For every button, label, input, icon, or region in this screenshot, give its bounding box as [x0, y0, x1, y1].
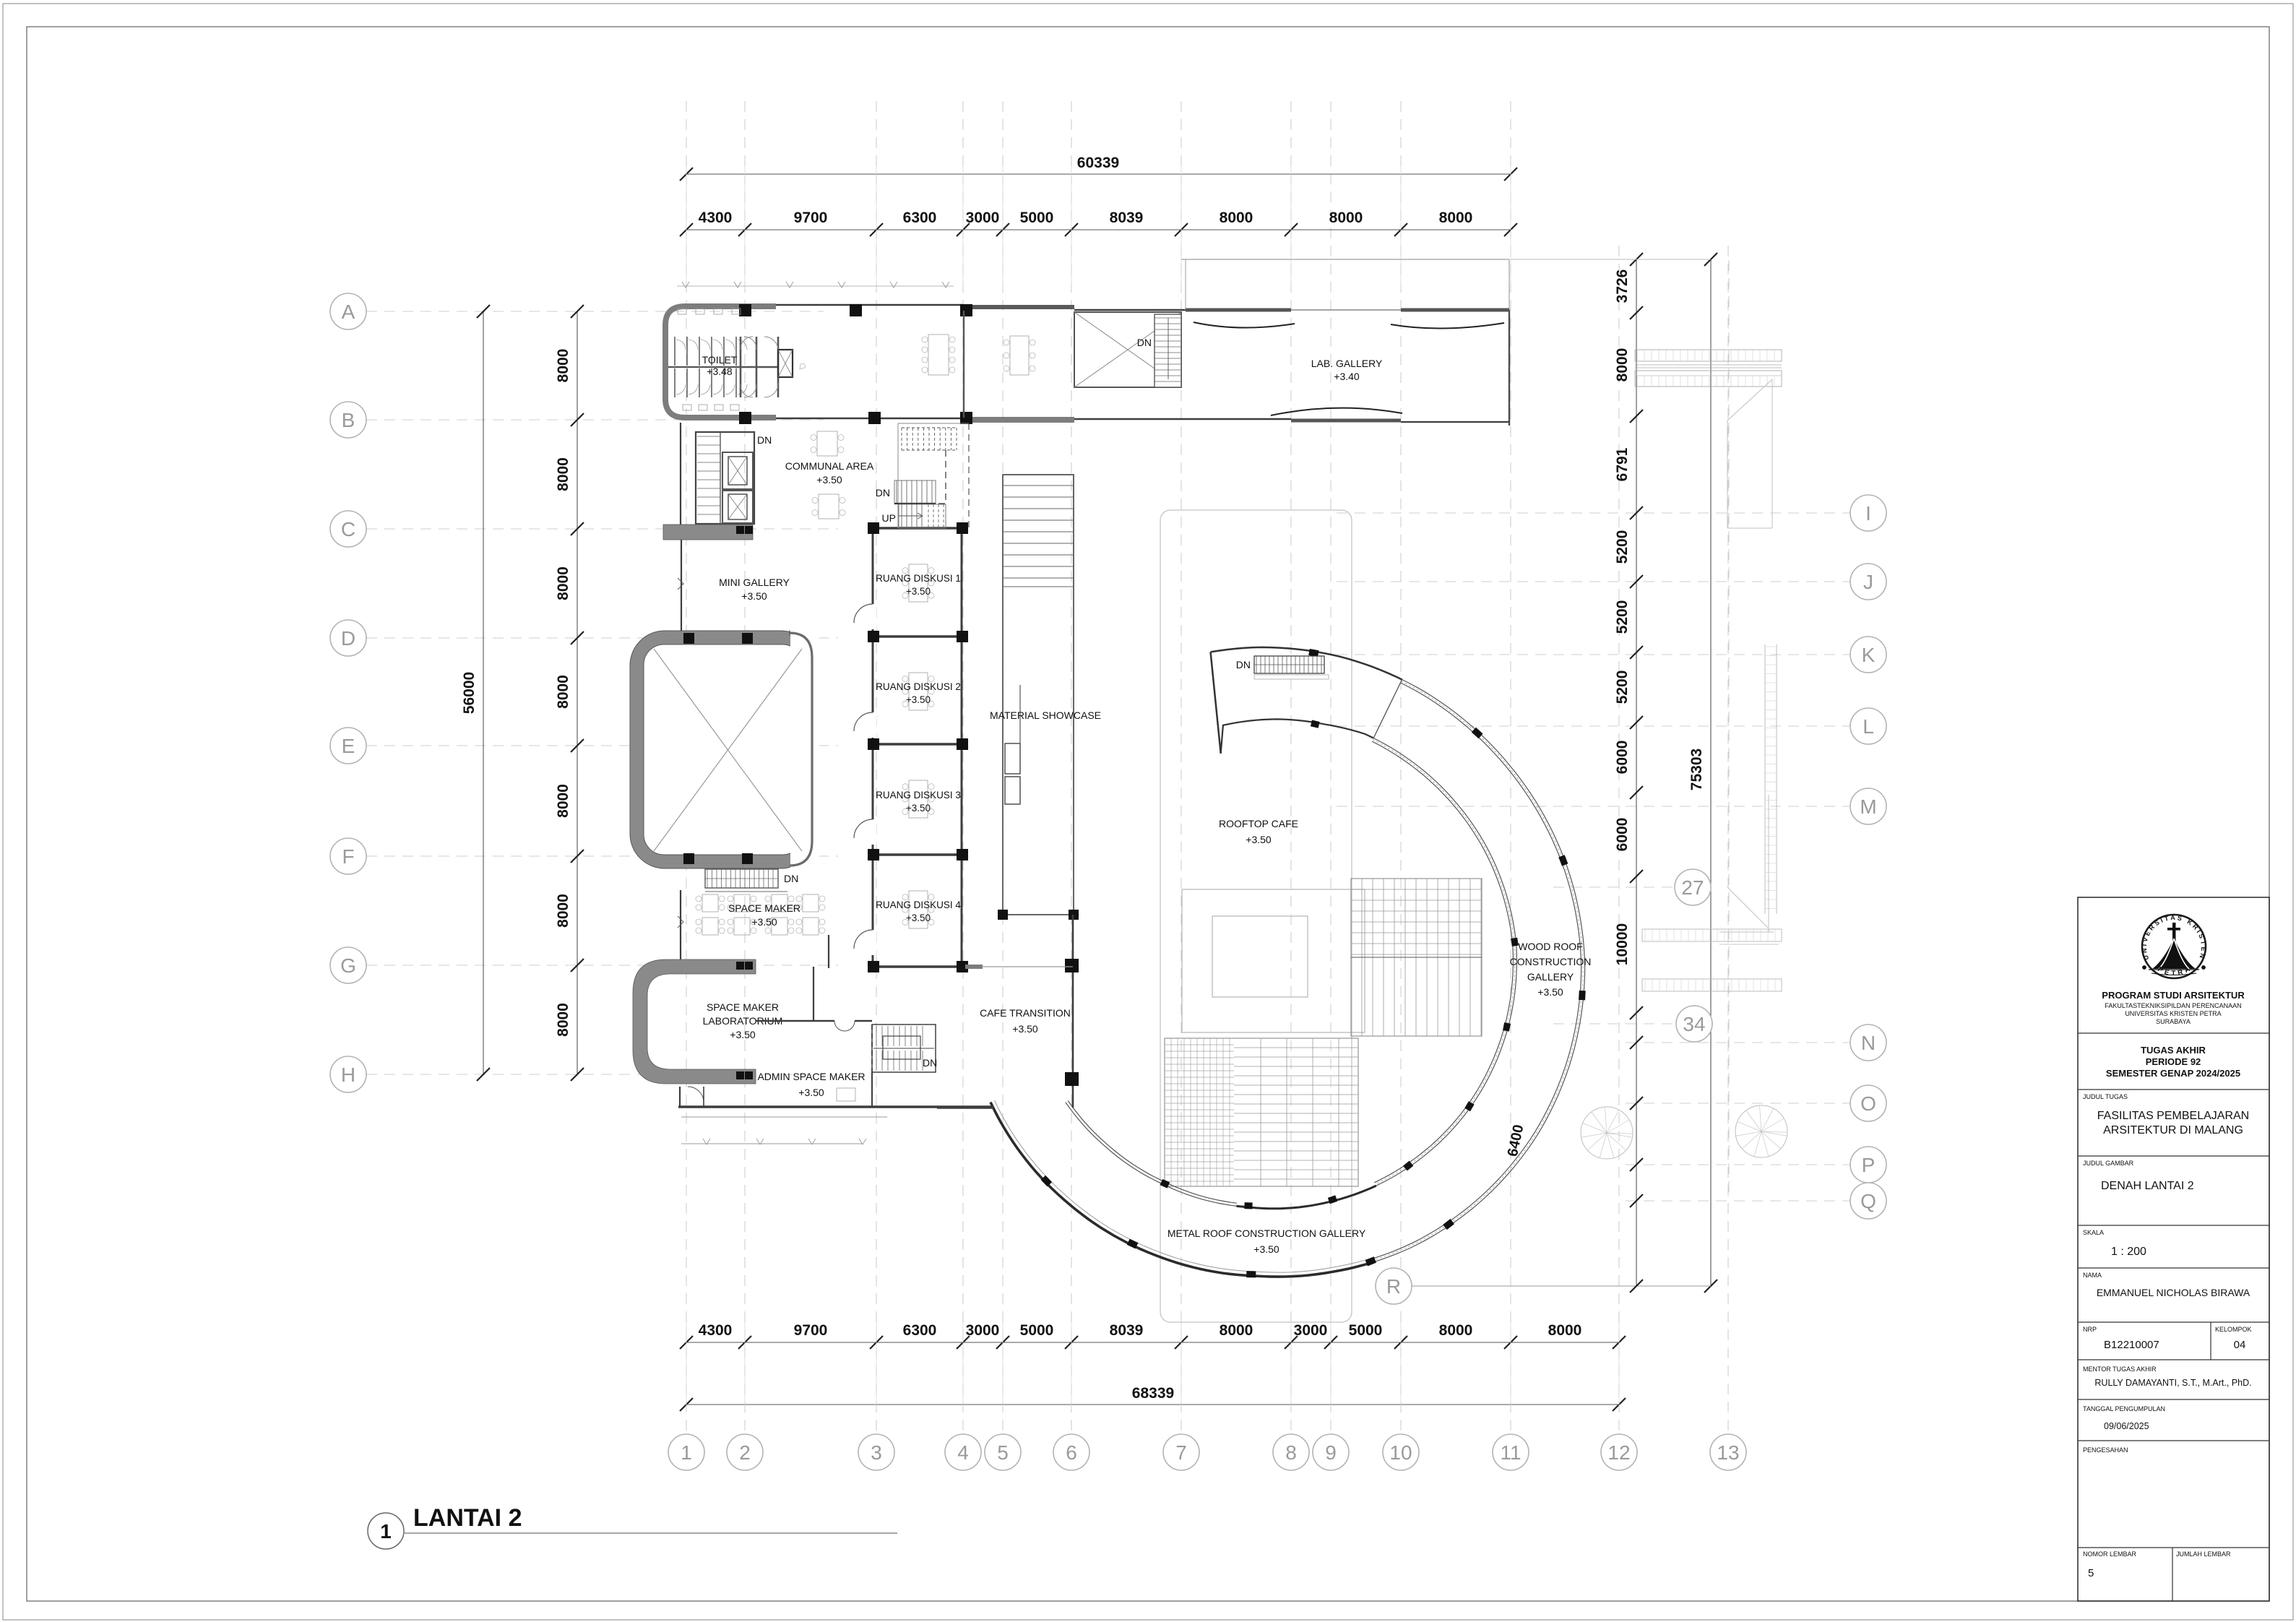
svg-text:G: G — [340, 954, 356, 977]
svg-text:DN: DN — [1137, 337, 1152, 348]
svg-text:11: 11 — [1500, 1441, 1521, 1464]
svg-text:09/06/2025: 09/06/2025 — [2104, 1421, 2149, 1431]
svg-text:4300: 4300 — [699, 1322, 733, 1339]
svg-text:+3.50: +3.50 — [730, 1029, 756, 1040]
svg-text:5000: 5000 — [1349, 1322, 1383, 1339]
svg-text:5000: 5000 — [1020, 210, 1054, 226]
svg-text:3000: 3000 — [966, 210, 1000, 226]
svg-text:04: 04 — [2234, 1339, 2246, 1351]
svg-text:13: 13 — [1717, 1441, 1739, 1464]
svg-text:6300: 6300 — [903, 210, 937, 226]
svg-text:EMMANUEL NICHOLAS BIRAWA: EMMANUEL NICHOLAS BIRAWA — [2097, 1287, 2250, 1298]
svg-text:8000: 8000 — [1439, 210, 1473, 226]
svg-text:RUANG DISKUSI 3: RUANG DISKUSI 3 — [876, 790, 961, 801]
svg-text:9700: 9700 — [794, 1322, 828, 1339]
svg-text:B: B — [342, 409, 355, 431]
svg-text:RUANG DISKUSI 4: RUANG DISKUSI 4 — [876, 900, 961, 910]
svg-text:9700: 9700 — [794, 210, 828, 226]
svg-text:8000: 8000 — [555, 784, 571, 818]
svg-text:7: 7 — [1175, 1441, 1187, 1464]
svg-text:3000: 3000 — [966, 1322, 1000, 1339]
svg-text:LANTAI 2: LANTAI 2 — [413, 1504, 522, 1532]
svg-text:JUDUL TUGAS: JUDUL TUGAS — [2083, 1093, 2128, 1100]
svg-text:ROOFTOP CAFE: ROOFTOP CAFE — [1219, 818, 1298, 829]
svg-text:5000: 5000 — [1020, 1322, 1054, 1339]
svg-text:5200: 5200 — [1614, 670, 1631, 704]
svg-text:8000: 8000 — [1220, 1322, 1253, 1339]
svg-text:60339: 60339 — [1077, 155, 1119, 171]
svg-text:4300: 4300 — [699, 210, 733, 226]
svg-text:6000: 6000 — [1614, 741, 1631, 775]
svg-text:B12210007: B12210007 — [2104, 1339, 2159, 1351]
svg-text:N: N — [1861, 1032, 1876, 1054]
svg-text:+3.40: +3.40 — [1334, 371, 1360, 382]
svg-text:CAFE TRANSITION: CAFE TRANSITION — [980, 1007, 1071, 1019]
svg-text:8000: 8000 — [1329, 210, 1363, 226]
svg-text:J: J — [1863, 571, 1873, 593]
svg-text:DN: DN — [1236, 659, 1251, 670]
svg-text:TOILET: TOILET — [702, 354, 738, 366]
svg-text:MATERIAL SHOWCASE: MATERIAL SHOWCASE — [990, 709, 1101, 721]
svg-text:+3.50: +3.50 — [1537, 986, 1563, 998]
svg-text:P: P — [1862, 1154, 1876, 1176]
svg-text:H: H — [341, 1064, 355, 1086]
svg-text:K: K — [1862, 644, 1876, 666]
svg-text:27: 27 — [1681, 876, 1704, 899]
svg-text:8: 8 — [1285, 1441, 1297, 1464]
svg-text:8000: 8000 — [555, 566, 571, 600]
svg-text:+3.50: +3.50 — [906, 803, 931, 814]
svg-text:M: M — [1860, 795, 1876, 818]
svg-text:COMMUNAL AREA: COMMUNAL AREA — [785, 460, 874, 472]
svg-text:6: 6 — [1066, 1441, 1077, 1464]
svg-text:FASILITAS PEMBELAJARAN: FASILITAS PEMBELAJARAN — [2097, 1110, 2249, 1122]
svg-text:NAMA: NAMA — [2083, 1272, 2102, 1279]
svg-text:SPACE MAKER: SPACE MAKER — [728, 902, 800, 914]
svg-text:68339: 68339 — [1132, 1385, 1174, 1402]
svg-text:+3.50: +3.50 — [798, 1087, 824, 1098]
svg-text:4: 4 — [957, 1441, 969, 1464]
svg-text:10000: 10000 — [1614, 923, 1631, 965]
svg-text:+3.50: +3.50 — [906, 913, 931, 923]
svg-text:I: I — [1865, 502, 1871, 525]
svg-text:8000: 8000 — [555, 1003, 571, 1037]
svg-text:PENGESAHAN: PENGESAHAN — [2083, 1446, 2128, 1454]
svg-text:3726: 3726 — [1614, 269, 1631, 303]
svg-text:KELOMPOK: KELOMPOK — [2215, 1326, 2252, 1333]
svg-text:DN: DN — [757, 434, 772, 446]
svg-text:DN: DN — [923, 1057, 937, 1069]
svg-text:ADMIN SPACE MAKER: ADMIN SPACE MAKER — [757, 1071, 865, 1082]
svg-text:+3.50: +3.50 — [906, 586, 931, 597]
svg-text:10: 10 — [1389, 1441, 1412, 1464]
svg-text:Q: Q — [1860, 1190, 1876, 1212]
svg-text:F: F — [342, 845, 354, 868]
svg-text:+3.50: +3.50 — [1246, 834, 1272, 845]
svg-text:NRP: NRP — [2083, 1326, 2097, 1333]
svg-text:1 : 200: 1 : 200 — [2111, 1246, 2146, 1258]
svg-text:+3.50: +3.50 — [751, 916, 777, 928]
svg-text:D: D — [341, 627, 355, 650]
svg-text:+3.48: +3.48 — [707, 366, 733, 377]
svg-text:8000: 8000 — [1439, 1322, 1473, 1339]
svg-text:MINI GALLERY: MINI GALLERY — [719, 577, 790, 588]
svg-text:5200: 5200 — [1614, 600, 1631, 634]
svg-text:SPACE MAKER: SPACE MAKER — [707, 1001, 779, 1013]
svg-text:TUGAS AKHIR: TUGAS AKHIR — [2141, 1045, 2206, 1056]
svg-text:JUMLAH LEMBAR: JUMLAH LEMBAR — [2176, 1550, 2231, 1558]
svg-text:8000: 8000 — [555, 457, 571, 491]
svg-text:DN: DN — [876, 487, 890, 499]
svg-text:TANGGAL PENGUMPULAN: TANGGAL PENGUMPULAN — [2083, 1405, 2165, 1412]
svg-text:12: 12 — [1607, 1441, 1630, 1464]
svg-text:34: 34 — [1683, 1013, 1705, 1035]
svg-text:RUANG DISKUSI 1: RUANG DISKUSI 1 — [876, 573, 961, 584]
svg-text:R: R — [1386, 1275, 1401, 1298]
svg-text:1: 1 — [380, 1520, 392, 1543]
svg-text:FAKULTASTEKNIKSIPILDAN PERENCA: FAKULTASTEKNIKSIPILDAN PERENCANAAN — [2105, 1002, 2241, 1009]
svg-text:JUDUL GAMBAR: JUDUL GAMBAR — [2083, 1160, 2134, 1167]
svg-text:9: 9 — [1325, 1441, 1337, 1464]
svg-text:56000: 56000 — [461, 672, 478, 714]
svg-text:8000: 8000 — [555, 675, 571, 709]
svg-text:5: 5 — [997, 1441, 1009, 1464]
svg-text:METAL ROOF CONSTRUCTION GALLER: METAL ROOF CONSTRUCTION GALLERY — [1168, 1228, 1366, 1239]
svg-text:3000: 3000 — [1294, 1322, 1328, 1339]
svg-text:6300: 6300 — [903, 1322, 937, 1339]
svg-text:5: 5 — [2088, 1567, 2094, 1579]
svg-text:+3.50: +3.50 — [1253, 1243, 1279, 1255]
svg-text:+3.50: +3.50 — [741, 590, 767, 602]
svg-text:75303: 75303 — [1688, 749, 1705, 790]
svg-text:ARSITEKTUR DI MALANG: ARSITEKTUR DI MALANG — [2103, 1124, 2243, 1136]
svg-text:O: O — [1860, 1092, 1876, 1115]
svg-text:NOMOR LEMBAR: NOMOR LEMBAR — [2083, 1550, 2137, 1558]
svg-text:+3.50: +3.50 — [816, 474, 842, 486]
svg-text:6000: 6000 — [1614, 818, 1631, 852]
svg-text:+3.50: +3.50 — [1012, 1023, 1038, 1035]
svg-text:6791: 6791 — [1614, 447, 1631, 481]
svg-text:SEMESTER GENAP 2024/2025: SEMESTER GENAP 2024/2025 — [2106, 1068, 2240, 1079]
svg-text:L: L — [1863, 715, 1874, 738]
svg-text:SKALA: SKALA — [2083, 1229, 2104, 1236]
svg-text:RUANG DISKUSI 2: RUANG DISKUSI 2 — [876, 681, 961, 692]
svg-text:LAB. GALLERY: LAB. GALLERY — [1311, 358, 1383, 369]
svg-text:WOOD ROOF: WOOD ROOF — [1518, 941, 1582, 952]
svg-text:PERIODE 92: PERIODE 92 — [2146, 1056, 2201, 1067]
svg-text:CONSTRUCTION: CONSTRUCTION — [1510, 956, 1592, 967]
svg-text:RULLY DAMAYANTI, S.T., M.Art.,: RULLY DAMAYANTI, S.T., M.Art., PhD. — [2094, 1378, 2251, 1388]
svg-text:MENTOR TUGAS AKHIR: MENTOR TUGAS AKHIR — [2083, 1366, 2157, 1373]
svg-text:+3.50: +3.50 — [906, 694, 931, 705]
svg-text:8000: 8000 — [555, 894, 571, 928]
svg-text:8039: 8039 — [1110, 1322, 1144, 1339]
svg-text:PROGRAM STUDI ARSITEKTUR: PROGRAM STUDI ARSITEKTUR — [2102, 990, 2245, 1001]
svg-text:1: 1 — [681, 1441, 692, 1464]
svg-text:8000: 8000 — [1548, 1322, 1582, 1339]
svg-text:8039: 8039 — [1110, 210, 1144, 226]
svg-text:DN: DN — [784, 873, 798, 884]
svg-text:SURABAYA: SURABAYA — [2156, 1018, 2191, 1025]
svg-text:E: E — [342, 735, 355, 757]
svg-text:UNIVERSITAS KRISTEN PETRA: UNIVERSITAS KRISTEN PETRA — [2125, 1010, 2221, 1017]
svg-text:GALLERY: GALLERY — [1527, 971, 1574, 983]
svg-text:A: A — [342, 301, 355, 323]
svg-text:C: C — [341, 518, 355, 540]
svg-text:8000: 8000 — [1614, 348, 1631, 382]
svg-text:DENAH LANTAI 2: DENAH LANTAI 2 — [2101, 1180, 2194, 1192]
svg-text:2: 2 — [739, 1441, 751, 1464]
svg-text:8000: 8000 — [555, 349, 571, 383]
svg-text:UP: UP — [882, 512, 896, 524]
svg-text:3: 3 — [871, 1441, 882, 1464]
svg-text:5200: 5200 — [1614, 530, 1631, 564]
svg-text:8000: 8000 — [1220, 210, 1253, 226]
